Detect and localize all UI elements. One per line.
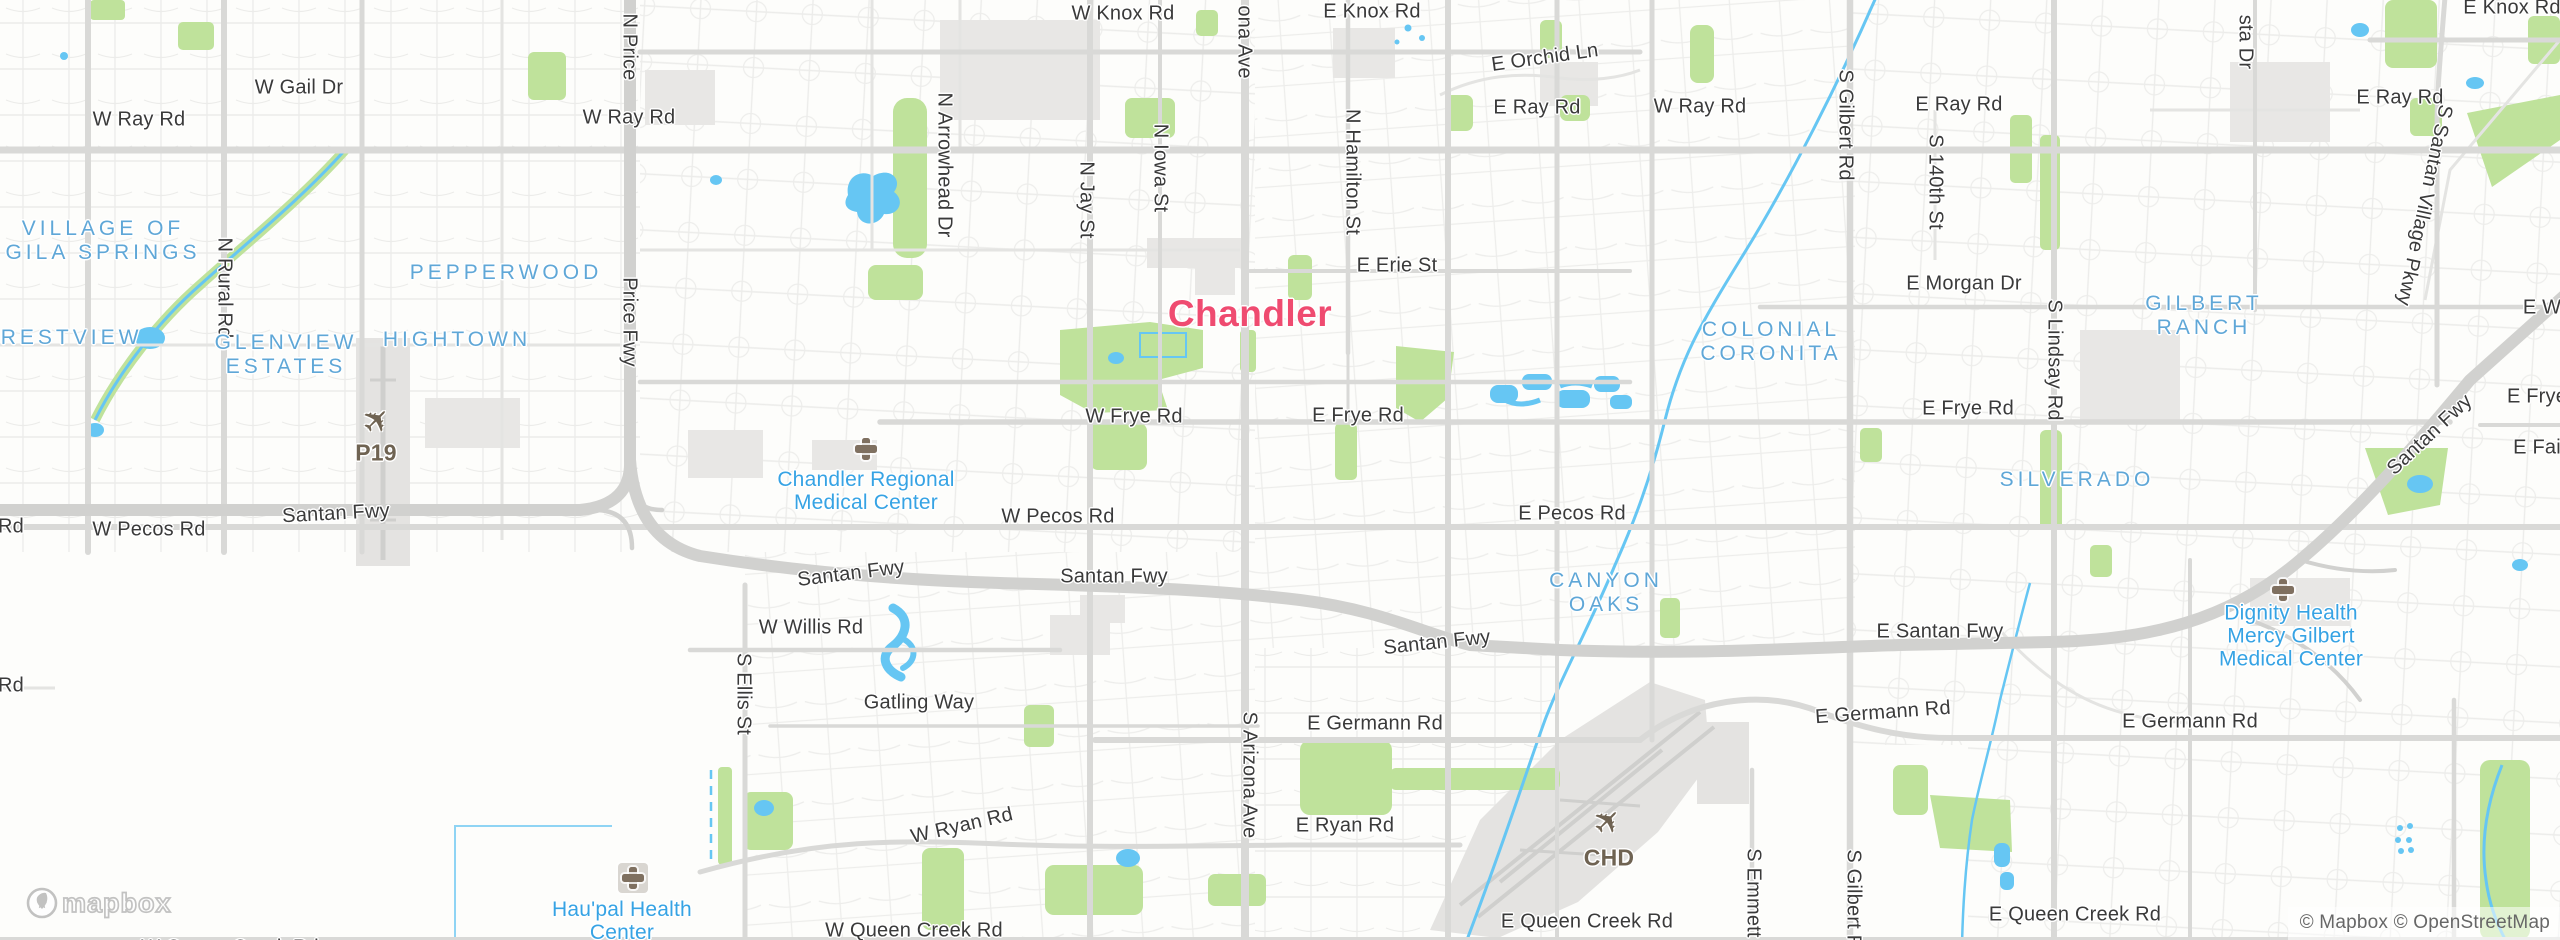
- road-label: E Fai: [2513, 437, 2560, 460]
- neighborhood-label-line: OAKS: [1549, 593, 1663, 617]
- map-canvas[interactable]: [0, 0, 2560, 940]
- road-label: W Queen Creek Rd: [825, 920, 1003, 940]
- poi-label-line: Medical Center: [777, 491, 954, 514]
- road-label: E Knox Rd: [1323, 1, 1420, 24]
- neighborhood-label: VILLAGE OFGILA SPRINGS: [5, 217, 200, 265]
- poi-label-line: Medical Center: [2219, 648, 2363, 671]
- road-label-vertical: N Jay St: [1075, 161, 1098, 238]
- road-label-vertical: S Arizona Ave: [1238, 712, 1261, 839]
- neighborhood-label-line: RANCH: [2145, 316, 2262, 340]
- road-label-vertical: S 140th St: [1924, 134, 1947, 229]
- road-label-vertical: S Emmett: [1742, 848, 1765, 937]
- road-label-vertical: N Iowa St: [1149, 124, 1172, 213]
- hospital-icon: [854, 437, 878, 461]
- neighborhood-label: CRESTVIEW: [0, 326, 142, 350]
- neighborhood-label-line: GILBERT: [2145, 292, 2262, 316]
- road-label: E Ray Rd: [1915, 94, 2002, 117]
- road-label: E Frye Rd: [1922, 398, 2014, 421]
- road-label-vertical: N Price: [618, 14, 641, 81]
- road-label: W Willis Rd: [759, 617, 863, 640]
- road-label: W Frye Rd: [1085, 406, 1182, 429]
- poi-label-line: Mercy Gilbert: [2219, 625, 2363, 648]
- neighborhood-label: GILBERTRANCH: [2145, 292, 2262, 340]
- road-label: E Pecos Rd: [1518, 503, 1626, 526]
- road-label: Santan Fwy: [1060, 566, 1168, 589]
- road-label: E Knox Rd: [2463, 0, 2560, 20]
- road-label-vertical: S Ellis St: [732, 653, 755, 735]
- neighborhood-label-line: GILA SPRINGS: [5, 241, 200, 265]
- road-label: E Queen Creek Rd: [1989, 904, 2161, 927]
- road-label: E Frye: [2507, 386, 2560, 409]
- neighborhood-label-line: SILVERADO: [2000, 468, 2155, 492]
- neighborhood-label-line: GLENVIEW: [215, 331, 358, 355]
- road-label: Rd: [0, 675, 24, 698]
- road-label: W Knox Rd: [1072, 3, 1175, 26]
- map-viewport[interactable]: mapbox © Mapbox © OpenStreetMap W Knox R…: [0, 0, 2560, 940]
- road-label-vertical: S Lindsay Rd: [2043, 299, 2066, 420]
- road-label: Rd: [0, 516, 24, 539]
- neighborhood-label-line: ESTATES: [215, 355, 358, 379]
- poi-label: Hau'pal HealthCenter: [552, 898, 692, 940]
- road-label: E Germann Rd: [1307, 713, 1443, 736]
- airport-code-label: CHD: [1584, 845, 1634, 872]
- poi-label: Dignity HealthMercy GilbertMedical Cente…: [2219, 602, 2363, 671]
- road-label: W Pecos Rd: [92, 519, 205, 542]
- neighborhood-label-line: CORONITA: [1700, 342, 1841, 366]
- road-label: W Ray Rd: [93, 109, 186, 132]
- road-label-vertical: N Arrowhead Dr: [933, 92, 956, 237]
- road-label-vertical: Price Fwy: [618, 277, 641, 367]
- road-label-vertical: sta Dr: [2234, 15, 2257, 70]
- neighborhood-label-line: CANYON: [1549, 569, 1663, 593]
- road-label-vertical: S Gilbert Rd: [1834, 69, 1857, 180]
- road-label: E Morgan Dr: [1906, 273, 2022, 296]
- poi-label-line: Dignity Health: [2219, 602, 2363, 625]
- neighborhood-label-line: VILLAGE OF: [5, 217, 200, 241]
- airport-code-label: P19: [355, 440, 397, 467]
- road-label: E Queen Creek Rd: [1501, 911, 1673, 934]
- road-label-vertical: ona Ave: [1233, 5, 1256, 78]
- neighborhood-label: HIGHTOWN: [383, 328, 531, 352]
- road-label: W Ray Rd: [1654, 96, 1747, 119]
- neighborhood-label-line: CRESTVIEW: [0, 326, 142, 350]
- poi-label-line: Chandler Regional: [777, 468, 954, 491]
- road-label: W Queen Creek Rd: [141, 937, 319, 940]
- neighborhood-label-line: PEPPERWOOD: [410, 261, 602, 285]
- road-label-vertical: S Gilbert Rd: [1842, 849, 1865, 940]
- poi-label: Chandler RegionalMedical Center: [777, 468, 954, 514]
- mapbox-logo[interactable]: mapbox: [24, 883, 184, 928]
- map-attribution[interactable]: © Mapbox © OpenStreetMap: [2288, 907, 2560, 940]
- neighborhood-label: PEPPERWOOD: [410, 261, 602, 285]
- road-label-vertical: N Rural Rd: [213, 238, 236, 339]
- road-label: E Ray Rd: [1493, 97, 1580, 120]
- neighborhood-label: GLENVIEWESTATES: [215, 331, 358, 379]
- road-label: E Germann Rd: [2122, 711, 2258, 734]
- road-label: Gatling Way: [864, 692, 974, 715]
- neighborhood-label-line: HIGHTOWN: [383, 328, 531, 352]
- hospital-icon-boxed: [618, 863, 648, 893]
- neighborhood-label: CANYONOAKS: [1549, 569, 1663, 617]
- poi-label-line: Center: [552, 921, 692, 940]
- road-label: E Frye Rd: [1312, 405, 1404, 428]
- road-label-vertical: N Hamilton St: [1341, 109, 1364, 235]
- city-label: Chandler: [1168, 293, 1332, 335]
- neighborhood-label: COLONIALCORONITA: [1700, 318, 1841, 366]
- road-label: E Santan Fwy: [1877, 621, 2004, 644]
- road-label: E Ray Rd: [2356, 87, 2443, 110]
- poi-label-line: Hau'pal Health: [552, 898, 692, 921]
- neighborhood-label-line: COLONIAL: [1700, 318, 1841, 342]
- road-label: W Gail Dr: [255, 77, 343, 100]
- neighborhood-label: SILVERADO: [2000, 468, 2155, 492]
- road-label: W Pecos Rd: [1001, 506, 1114, 529]
- road-label: W Ray Rd: [583, 107, 676, 130]
- road-label: E W: [2523, 297, 2560, 320]
- hospital-icon: [2271, 578, 2295, 602]
- road-label: E Ryan Rd: [1296, 815, 1395, 838]
- mapbox-wordmark: mapbox: [62, 888, 172, 918]
- road-label: E Erie St: [1357, 255, 1438, 278]
